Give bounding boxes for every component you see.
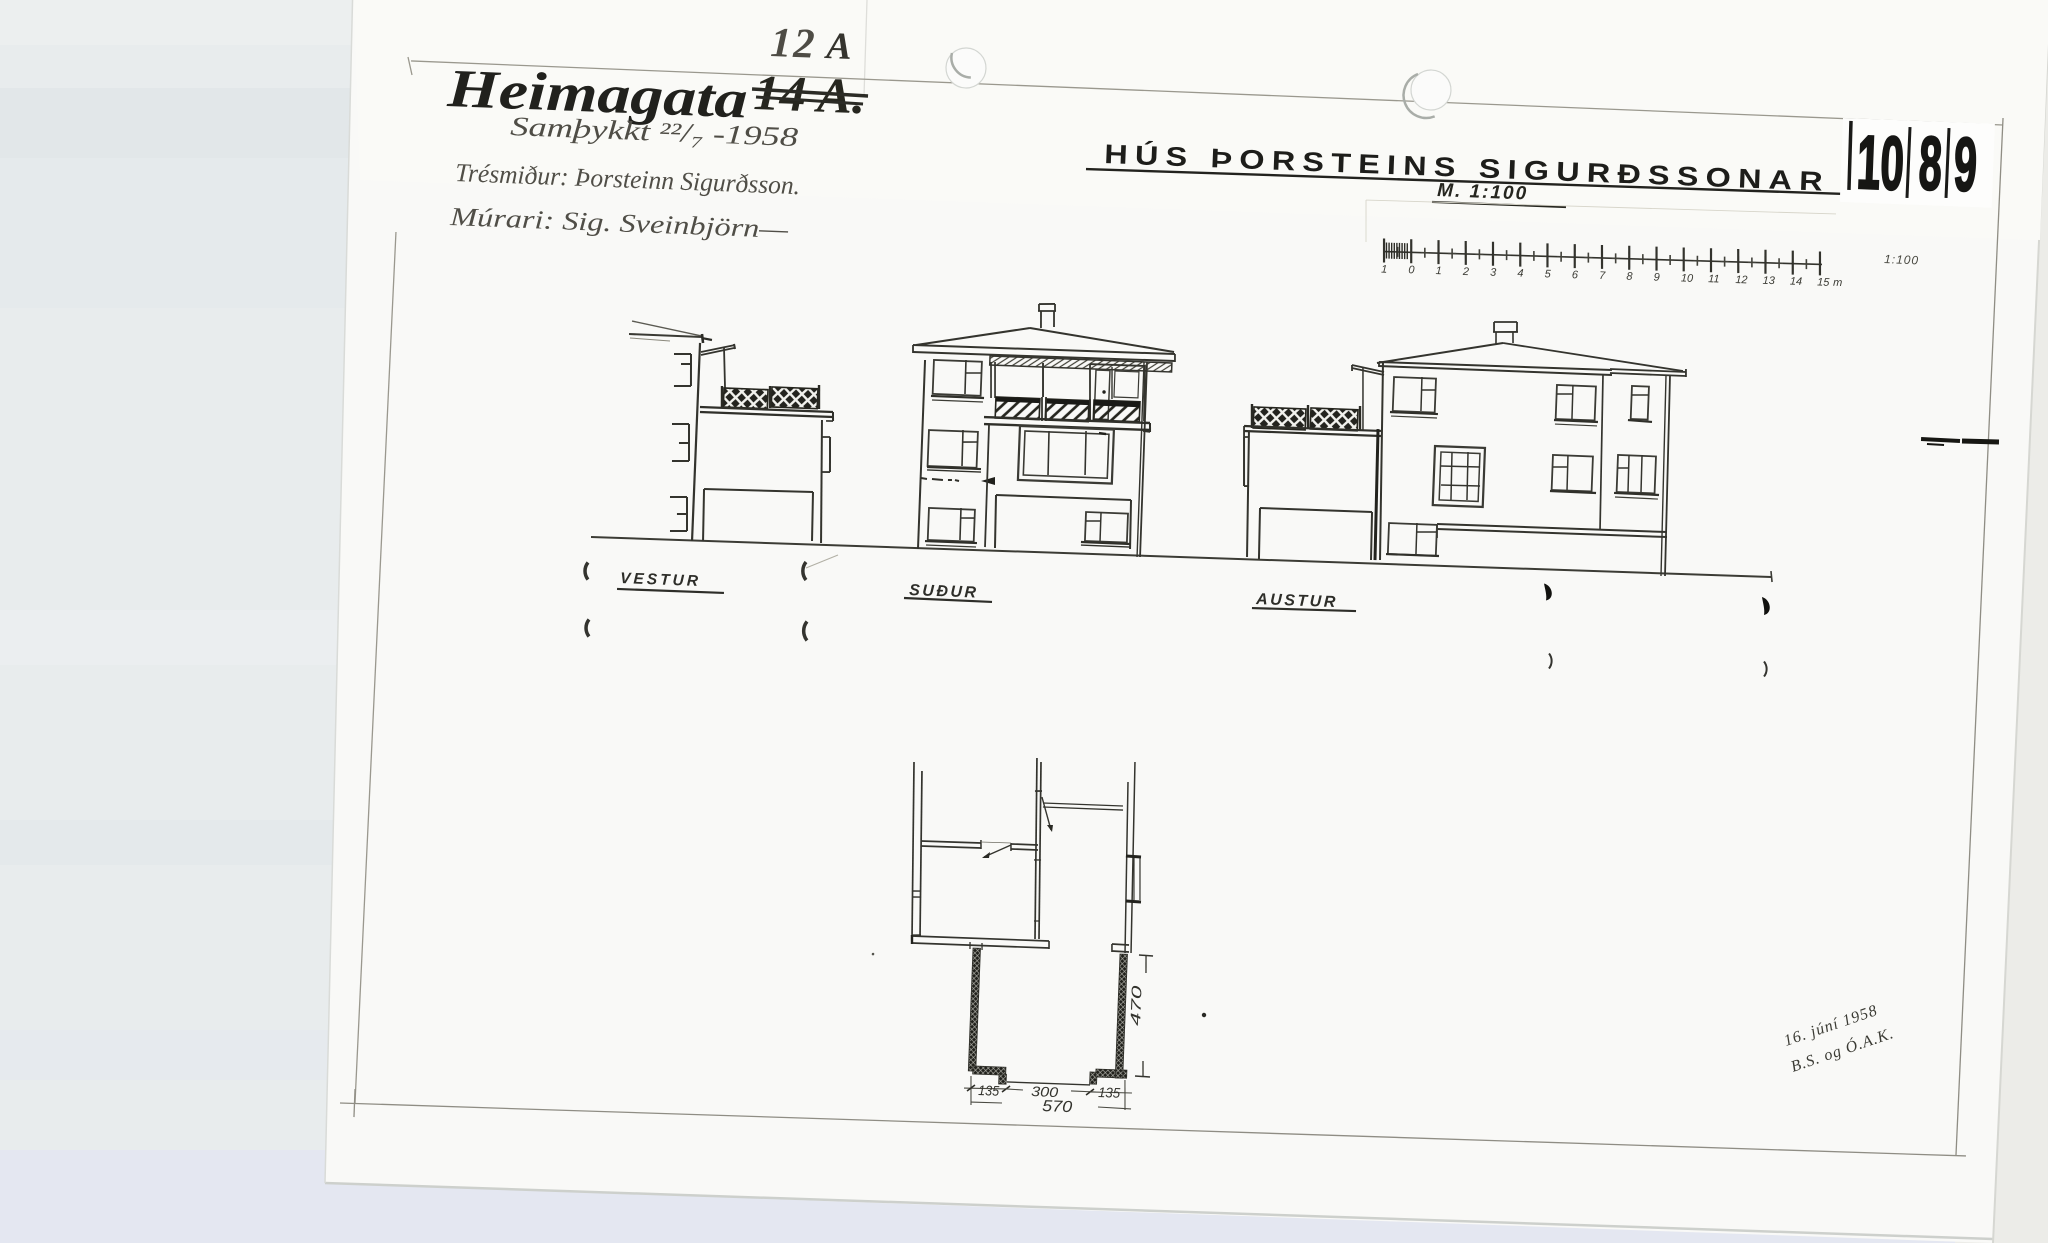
svg-text:m: m (1833, 277, 1843, 289)
svg-text:14: 14 (1790, 276, 1803, 288)
svg-text:1:100: 1:100 (1884, 252, 1920, 267)
svg-text:VESTUR: VESTUR (620, 570, 701, 590)
svg-text:570: 570 (1042, 1098, 1073, 1116)
svg-text:15: 15 (1817, 276, 1831, 288)
svg-text:A: A (824, 25, 853, 68)
svg-text:1: 1 (1435, 265, 1442, 277)
svg-text:2: 2 (1462, 266, 1470, 278)
svg-text:135: 135 (1098, 1084, 1121, 1101)
svg-text:1: 1 (1381, 263, 1388, 275)
svg-text:13: 13 (1762, 275, 1776, 287)
svg-text:9: 9 (1653, 272, 1660, 284)
svg-text:9: 9 (1952, 122, 1978, 208)
svg-text:11: 11 (1708, 273, 1720, 285)
svg-text:10: 10 (1855, 120, 1905, 207)
svg-text:470: 470 (1127, 985, 1145, 1026)
svg-text:4: 4 (1517, 267, 1524, 279)
svg-text:12: 12 (1735, 274, 1748, 286)
svg-text:10: 10 (1681, 272, 1695, 284)
svg-text:135: 135 (978, 1082, 1000, 1099)
svg-text:8: 8 (1917, 121, 1943, 207)
svg-text:12: 12 (770, 20, 818, 68)
svg-text:M. 1:100: M. 1:100 (1437, 180, 1529, 204)
